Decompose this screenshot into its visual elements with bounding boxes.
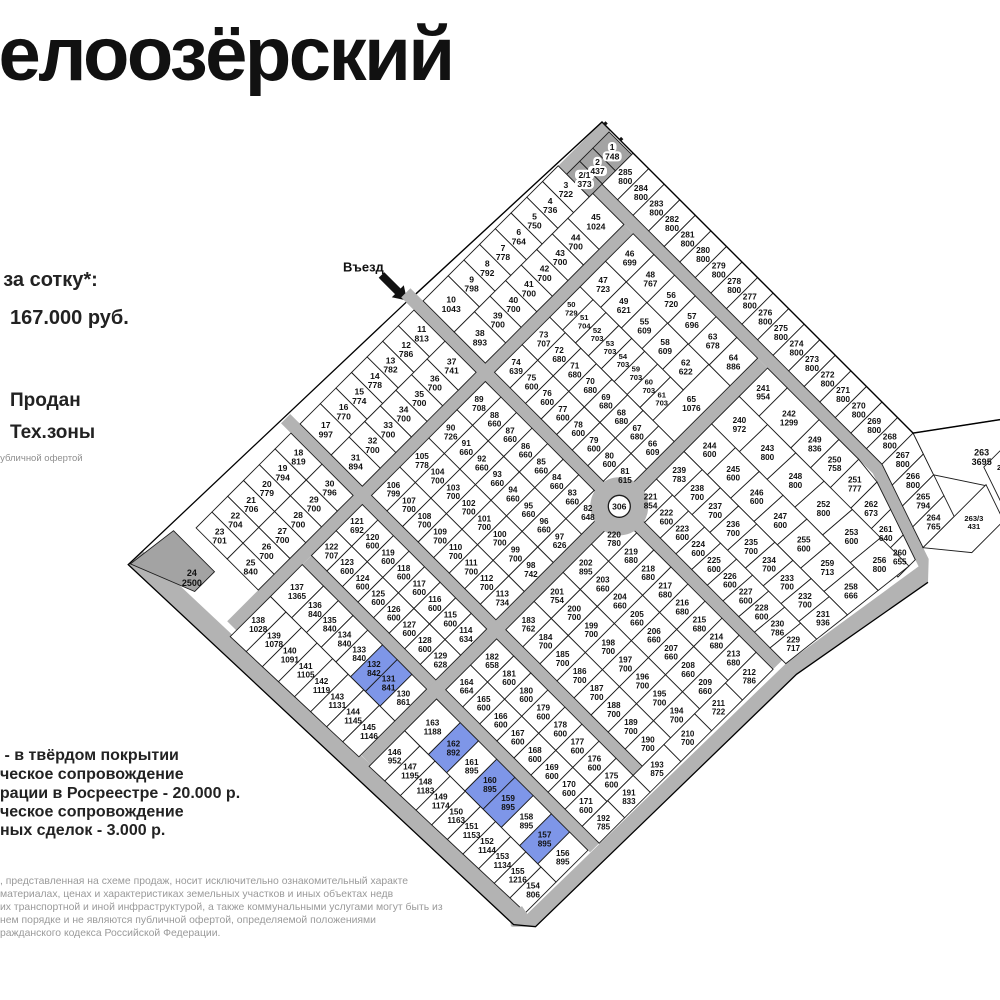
svg-text:160895: 160895	[483, 776, 497, 794]
svg-text:материалах, ценах и характерис: материалах, ценах и характеристиках земе…	[0, 888, 394, 900]
svg-text:нем порядке и не являются публ: нем порядке и не являются публичной офер…	[0, 914, 376, 926]
svg-text:166600: 166600	[494, 712, 508, 730]
svg-text:251777: 251777	[848, 476, 862, 494]
svg-text:218680: 218680	[641, 564, 655, 582]
svg-text:126600: 126600	[387, 605, 401, 623]
svg-text:Дороги - в твёрдом покрытии: Дороги - в твёрдом покрытии	[0, 747, 179, 764]
svg-text:176600: 176600	[588, 755, 602, 773]
svg-text:177600: 177600	[571, 738, 585, 756]
svg-text:234700: 234700	[762, 556, 776, 574]
svg-text:1391078: 1391078	[265, 631, 284, 649]
svg-text:260655: 260655	[893, 549, 907, 567]
svg-text:239783: 239783	[672, 466, 686, 484]
svg-text:ражданского кодекса Российской: ражданского кодекса Российской Федерации…	[0, 928, 220, 939]
svg-text:124600: 124600	[356, 574, 370, 592]
svg-text:214680: 214680	[710, 633, 724, 651]
svg-text:1511153: 1511153	[463, 822, 481, 840]
svg-text:101700: 101700	[477, 514, 491, 532]
svg-text:182658: 182658	[485, 652, 499, 670]
svg-text:285800: 285800	[618, 167, 632, 186]
svg-text:183762: 183762	[522, 616, 536, 634]
svg-text:227600: 227600	[739, 588, 753, 606]
svg-text:233700: 233700	[780, 574, 794, 592]
svg-text:114634: 114634	[459, 626, 473, 644]
svg-text:248800: 248800	[789, 472, 803, 490]
svg-text:1371365: 1371365	[288, 583, 307, 601]
svg-text:1441145: 1441145	[344, 708, 362, 726]
svg-text:157895: 157895	[538, 831, 552, 849]
svg-text:2633695: 2633695	[972, 447, 992, 467]
svg-text:206660: 206660	[647, 627, 661, 645]
svg-text:111700: 111700	[464, 559, 478, 577]
svg-text:170600: 170600	[562, 780, 576, 798]
svg-text:120600: 120600	[366, 533, 380, 551]
svg-text:1381028: 1381028	[249, 616, 268, 634]
svg-text:196700: 196700	[636, 673, 650, 691]
svg-text:208660: 208660	[681, 661, 695, 679]
svg-text:306: 306	[612, 501, 627, 511]
svg-text:204660: 204660	[613, 593, 627, 611]
svg-text:210700: 210700	[681, 730, 695, 748]
svg-text:119600: 119600	[381, 548, 395, 566]
svg-text:110700: 110700	[449, 543, 463, 561]
svg-text:237700: 237700	[708, 502, 722, 520]
svg-text:146952: 146952	[388, 748, 402, 766]
svg-text:281800: 281800	[681, 230, 695, 249]
svg-text:125600: 125600	[371, 589, 385, 607]
svg-text:256800: 256800	[873, 556, 887, 574]
svg-text:221854: 221854	[644, 493, 658, 511]
svg-text:публичной офертой: публичной офертой	[0, 453, 83, 464]
svg-text:192785: 192785	[597, 814, 611, 832]
svg-text:Юридическое сопровождение: Юридическое сопровождение	[0, 804, 184, 821]
svg-text:261640: 261640	[879, 525, 893, 543]
svg-text:264765: 264765	[927, 512, 941, 531]
svg-text:262673: 262673	[864, 500, 878, 518]
svg-text:240972: 240972	[733, 416, 747, 434]
svg-text:1451146: 1451146	[360, 723, 378, 741]
svg-text:241954: 241954	[756, 384, 770, 402]
svg-text:, представленная на схеме прод: , представленная на схеме продаж, носит …	[0, 876, 408, 887]
svg-text:226600: 226600	[723, 572, 737, 590]
svg-text:132842: 132842	[367, 660, 381, 678]
svg-text:122707: 122707	[325, 543, 339, 561]
svg-text:198700: 198700	[601, 638, 615, 656]
svg-text:276800: 276800	[758, 307, 772, 326]
svg-text:193875: 193875	[650, 760, 664, 778]
svg-text:остальных сделок - 3.000 р.: остальных сделок - 3.000 р.	[0, 822, 165, 839]
svg-text:136840: 136840	[308, 601, 322, 619]
svg-text:103700: 103700	[446, 483, 460, 501]
svg-text:190700: 190700	[641, 735, 655, 753]
svg-text:247600: 247600	[773, 512, 787, 530]
svg-text:109700: 109700	[433, 528, 447, 546]
svg-text:102700: 102700	[462, 499, 476, 517]
svg-text:130861: 130861	[397, 689, 411, 707]
svg-text:284800: 284800	[634, 183, 648, 202]
svg-text:164664: 164664	[460, 678, 474, 696]
svg-text:181600: 181600	[502, 669, 516, 687]
svg-text:187700: 187700	[590, 684, 604, 702]
svg-text:238700: 238700	[690, 484, 704, 502]
svg-text:154806: 154806	[526, 882, 540, 900]
svg-text:105778: 105778	[415, 452, 429, 470]
svg-text:1501163: 1501163	[447, 807, 465, 825]
svg-text:280800: 280800	[696, 245, 710, 264]
svg-text:185700: 185700	[556, 650, 570, 668]
svg-text:161895: 161895	[465, 758, 479, 776]
svg-text:117600: 117600	[412, 579, 426, 597]
svg-text:273800: 273800	[805, 354, 819, 373]
svg-text:171600: 171600	[579, 797, 593, 815]
svg-text:201754: 201754	[550, 587, 564, 605]
svg-text:Юридическое сопровождение: Юридическое сопровождение	[0, 766, 184, 783]
svg-text:231936: 231936	[816, 610, 830, 628]
svg-text:112700: 112700	[480, 574, 494, 592]
svg-text:175600: 175600	[605, 772, 619, 790]
svg-text:Въезд: Въезд	[343, 260, 385, 275]
svg-text:129628: 129628	[434, 652, 448, 670]
svg-text:269800: 269800	[867, 416, 881, 435]
svg-text:186700: 186700	[573, 667, 587, 685]
svg-text:235700: 235700	[744, 538, 758, 556]
svg-text:Цена за сотку*:: Цена за сотку*:	[0, 269, 98, 291]
svg-text:Продан: Продан	[10, 390, 81, 411]
svg-text:134840: 134840	[338, 631, 352, 649]
svg-text:121692: 121692	[350, 517, 364, 535]
svg-text:228600: 228600	[755, 604, 769, 622]
svg-text:131841: 131841	[382, 675, 396, 693]
svg-text:252800: 252800	[817, 500, 831, 518]
svg-text:Белоозёрский: Белоозёрский	[0, 12, 453, 97]
svg-text:271800: 271800	[836, 385, 850, 404]
svg-text:213680: 213680	[727, 650, 741, 668]
svg-text:191833: 191833	[622, 788, 636, 806]
svg-text:184700: 184700	[539, 633, 553, 651]
svg-text:178600: 178600	[553, 721, 567, 739]
svg-text:123600: 123600	[340, 558, 354, 576]
svg-text:133840: 133840	[352, 645, 366, 663]
svg-text:2421299: 2421299	[780, 410, 799, 428]
svg-text:272800: 272800	[821, 370, 835, 389]
svg-text:200700: 200700	[567, 604, 581, 622]
svg-text:168600: 168600	[528, 746, 542, 764]
svg-text:регистрации в Росреестре - 20.: регистрации в Росреестре - 20.000 р.	[0, 785, 240, 802]
svg-text:244600: 244600	[703, 441, 717, 459]
svg-text:108700: 108700	[418, 512, 432, 530]
svg-text:212786: 212786	[743, 668, 757, 686]
svg-text:179600: 179600	[536, 704, 550, 722]
svg-text:259713: 259713	[821, 559, 835, 577]
svg-text:1481183: 1481183	[417, 778, 435, 796]
svg-text:270800: 270800	[852, 401, 866, 420]
svg-text:216680: 216680	[675, 599, 689, 617]
svg-text:211722: 211722	[712, 699, 726, 717]
svg-text:246600: 246600	[750, 488, 764, 506]
svg-text:243800: 243800	[761, 444, 775, 462]
svg-text:250758: 250758	[828, 455, 842, 473]
svg-text:236700: 236700	[726, 520, 740, 538]
svg-text:199700: 199700	[584, 621, 598, 639]
svg-text:2/1373: 2/1373	[577, 170, 592, 189]
svg-text:194700: 194700	[670, 707, 684, 725]
svg-text:275800: 275800	[774, 323, 788, 342]
svg-text:229717: 229717	[786, 635, 800, 653]
svg-text:1401091: 1401091	[281, 647, 300, 665]
svg-text:115600: 115600	[443, 611, 457, 629]
svg-text:278800: 278800	[727, 276, 741, 295]
svg-text:207660: 207660	[664, 644, 678, 662]
svg-text:223600: 223600	[675, 524, 689, 542]
svg-text:169600: 169600	[545, 763, 559, 781]
svg-text:205660: 205660	[630, 610, 644, 628]
svg-text:220780: 220780	[607, 530, 621, 548]
svg-text:1631188: 1631188	[424, 719, 442, 737]
svg-text:Тех.зоны: Тех.зоны	[10, 422, 95, 443]
svg-text:217680: 217680	[658, 582, 672, 600]
svg-text:253600: 253600	[845, 528, 859, 546]
svg-text:167.000 руб.: 167.000 руб.	[10, 307, 129, 329]
svg-text:156895: 156895	[556, 849, 570, 867]
svg-text:106799: 106799	[387, 481, 401, 499]
svg-text:224600: 224600	[691, 540, 705, 558]
svg-text:128600: 128600	[418, 636, 432, 654]
svg-text:116600: 116600	[428, 595, 442, 613]
svg-text:180600: 180600	[519, 686, 533, 704]
svg-text:189700: 189700	[624, 718, 638, 736]
svg-text:282800: 282800	[665, 214, 679, 233]
svg-text:230786: 230786	[771, 620, 785, 638]
svg-text:118600: 118600	[397, 564, 411, 582]
svg-text:162892: 162892	[447, 740, 461, 758]
svg-text:127600: 127600	[402, 620, 416, 638]
svg-text:209660: 209660	[698, 678, 712, 696]
svg-text:219680: 219680	[624, 547, 638, 565]
svg-text:258666: 258666	[844, 583, 858, 601]
svg-text:249836: 249836	[808, 436, 822, 454]
svg-text:1421119: 1421119	[313, 677, 331, 695]
svg-text:222600: 222600	[660, 509, 674, 527]
svg-text:1521144: 1521144	[478, 837, 496, 855]
svg-text:107700: 107700	[402, 496, 416, 514]
svg-text:1411105: 1411105	[297, 662, 315, 680]
svg-text:100700: 100700	[493, 530, 507, 548]
svg-text:165600: 165600	[477, 695, 491, 713]
svg-text:1431131: 1431131	[328, 692, 346, 710]
svg-text:1471195: 1471195	[401, 763, 419, 781]
svg-text:1551216: 1551216	[509, 867, 528, 885]
svg-text:232700: 232700	[798, 592, 812, 610]
svg-text:268800: 268800	[883, 432, 897, 451]
svg-text:195700: 195700	[653, 690, 667, 708]
svg-text:167600: 167600	[511, 729, 525, 747]
svg-text:113734: 113734	[495, 590, 509, 608]
svg-text:104700: 104700	[431, 468, 445, 486]
svg-text:135840: 135840	[323, 616, 337, 634]
svg-text:267800: 267800	[896, 450, 910, 469]
svg-text:265794: 265794	[916, 492, 930, 511]
svg-text:159895: 159895	[501, 794, 515, 812]
svg-text:245600: 245600	[726, 465, 740, 483]
svg-text:283800: 283800	[649, 198, 663, 217]
svg-text:274800: 274800	[790, 338, 804, 357]
svg-text:158895: 158895	[520, 813, 534, 831]
svg-text:255600: 255600	[797, 536, 811, 554]
svg-text:202895: 202895	[579, 559, 593, 577]
svg-text:1531134: 1531134	[494, 852, 512, 870]
svg-text:225600: 225600	[707, 556, 721, 574]
svg-text:их транспортной и иной инфраст: их транспортной и иной инфраструктурой, …	[0, 901, 443, 913]
svg-text:197700: 197700	[619, 656, 633, 674]
svg-text:266800: 266800	[906, 471, 920, 490]
svg-text:277800: 277800	[743, 292, 757, 311]
svg-text:188700: 188700	[607, 701, 621, 719]
svg-text:203660: 203660	[596, 576, 610, 594]
svg-text:279800: 279800	[712, 261, 726, 280]
svg-text:215680: 215680	[693, 616, 707, 634]
svg-text:1491174: 1491174	[432, 793, 450, 811]
